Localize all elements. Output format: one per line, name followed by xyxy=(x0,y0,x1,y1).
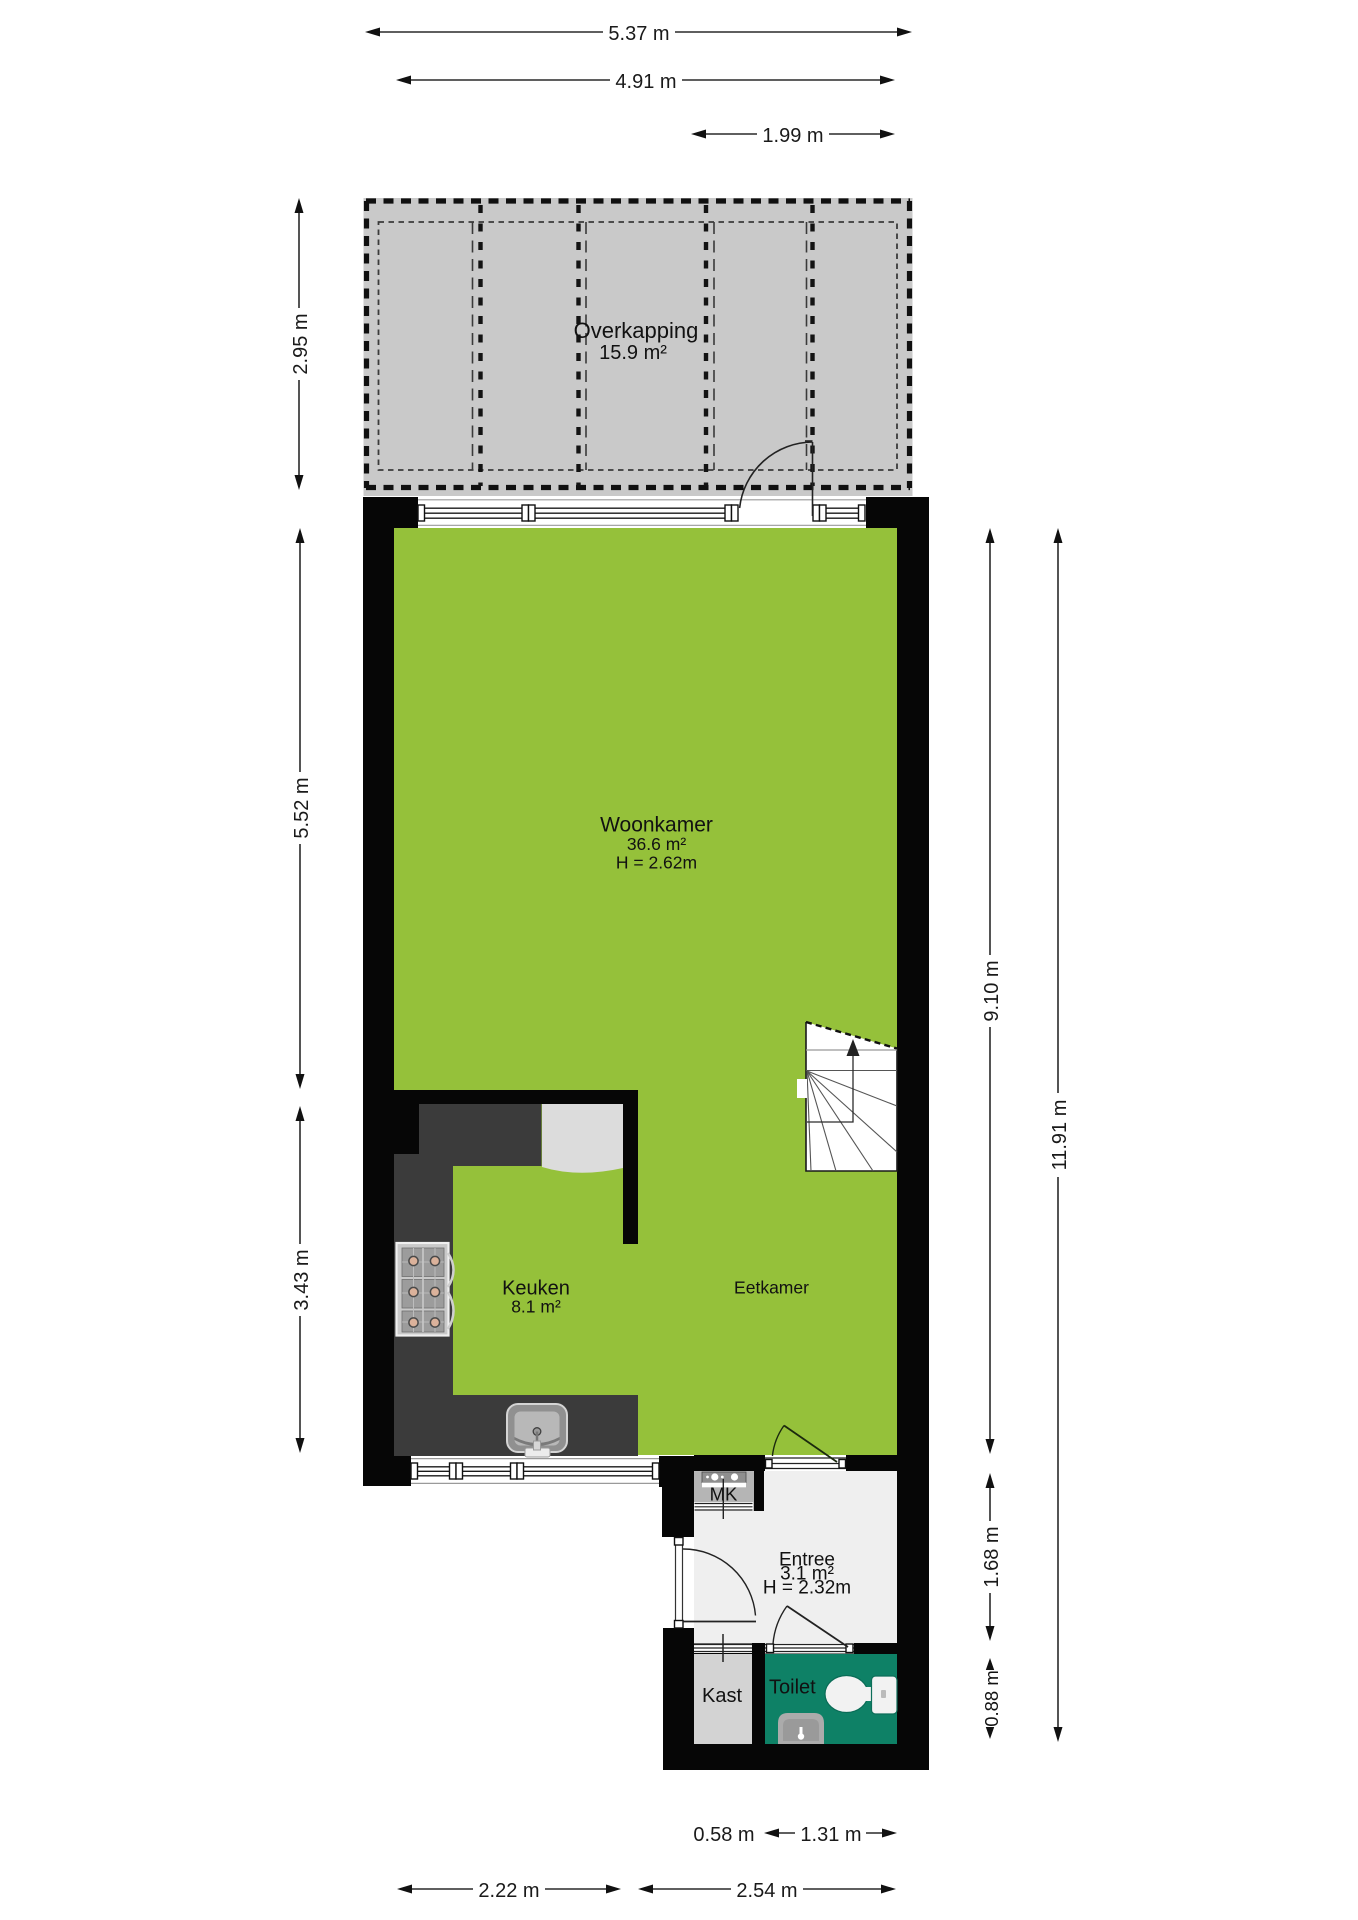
svg-text:2.95 m: 2.95 m xyxy=(290,313,312,374)
svg-text:11.91 m: 11.91 m xyxy=(1049,1100,1071,1171)
svg-text:1.68 m: 1.68 m xyxy=(981,1526,1003,1587)
svg-text:H = 2.62m: H = 2.62m xyxy=(616,853,697,873)
svg-text:1.99 m: 1.99 m xyxy=(762,125,823,147)
svg-text:Overkapping: Overkapping xyxy=(574,318,699,343)
svg-text:1.31 m: 1.31 m xyxy=(800,1824,861,1846)
svg-text:9.10 m: 9.10 m xyxy=(981,960,1003,1021)
svg-text:H = 2.32m: H = 2.32m xyxy=(763,1578,851,1599)
svg-text:Kast: Kast xyxy=(702,1685,742,1707)
svg-text:0.88 m: 0.88 m xyxy=(981,1670,1002,1727)
svg-text:5.52 m: 5.52 m xyxy=(291,777,313,838)
svg-text:3.43 m: 3.43 m xyxy=(291,1249,313,1310)
svg-text:5.37 m: 5.37 m xyxy=(608,23,669,45)
svg-text:36.6 m²: 36.6 m² xyxy=(627,834,686,854)
svg-text:Eetkamer: Eetkamer xyxy=(734,1278,809,1298)
svg-text:2.22 m: 2.22 m xyxy=(478,1880,539,1902)
svg-text:4.91 m: 4.91 m xyxy=(615,71,676,93)
svg-text:2.54 m: 2.54 m xyxy=(736,1880,797,1902)
svg-text:Toilet: Toilet xyxy=(769,1677,816,1699)
svg-text:8.1 m²: 8.1 m² xyxy=(511,1297,561,1317)
svg-text:15.9 m²: 15.9 m² xyxy=(599,342,667,364)
svg-text:0.58 m: 0.58 m xyxy=(693,1824,754,1846)
